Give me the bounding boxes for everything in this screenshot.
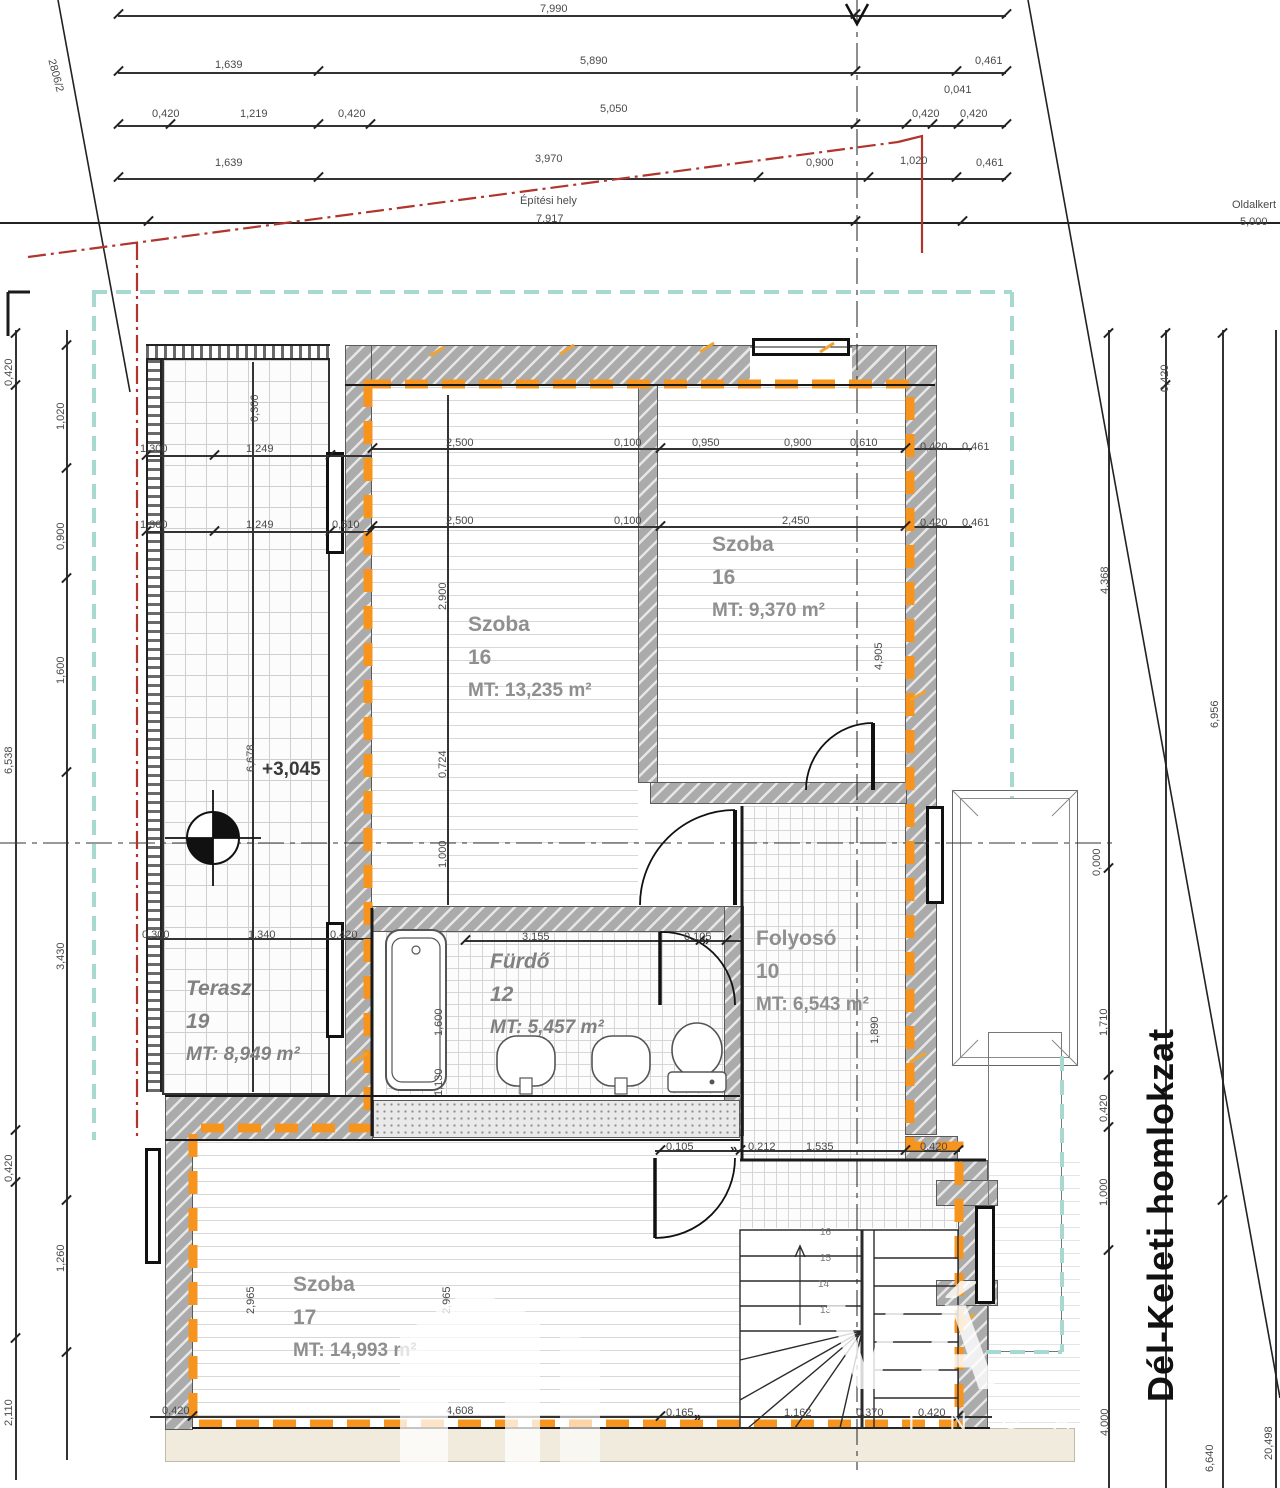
wall-left xyxy=(345,345,372,1135)
room-number: 16 xyxy=(712,561,825,594)
wall-right xyxy=(905,345,937,1135)
window-lower-right xyxy=(975,1206,995,1304)
dimension-label: 7,990 xyxy=(540,4,568,15)
room-name: Szoba xyxy=(468,608,592,641)
dimension-tick xyxy=(850,216,861,227)
dim-line xyxy=(655,1150,960,1152)
watermark-letters: I xyxy=(1172,1408,1193,1436)
dimension-tick xyxy=(753,172,764,183)
window-terrace-1 xyxy=(326,452,344,554)
dimension-label: 0,420 xyxy=(152,109,180,120)
room-number: 19 xyxy=(186,1005,300,1038)
terrace-railing-top xyxy=(146,344,330,360)
dim-line xyxy=(146,531,372,533)
dimension-tick xyxy=(313,66,324,77)
dimension-tick xyxy=(1001,119,1012,130)
room-label-terasz: Terasz 19 MT: 8,949 m² xyxy=(186,972,300,1071)
dimension-label: 5,050 xyxy=(600,104,628,115)
dimension-label: 0,420 xyxy=(338,109,366,120)
dimension-label: 13 xyxy=(820,1306,831,1316)
floor-plan-canvas: 7,9901,6395,8900,4610,4201,2190,4205,050… xyxy=(0,0,1280,1488)
wall-between-bedrooms xyxy=(638,385,658,783)
room-label-szoba-16-left: Szoba 16 MT: 13,235 m² xyxy=(468,608,592,707)
room-number: 12 xyxy=(490,978,604,1011)
bay-window-inner xyxy=(960,798,1070,1058)
dim-line-v xyxy=(1275,330,1277,1488)
wall-bathroom-top xyxy=(372,906,742,932)
room-number: 10 xyxy=(756,955,869,988)
room-label-folyoso: Folyosó 10 MT: 6,543 m² xyxy=(756,922,869,1021)
dimension-label: 5,890 xyxy=(580,56,608,67)
terrace-railing-left xyxy=(146,360,162,1092)
dimension-tick xyxy=(313,172,324,183)
dimension-label: 0,461 xyxy=(976,158,1004,169)
room-name: Szoba xyxy=(293,1268,417,1301)
dimension-label: 0,900 xyxy=(806,158,834,169)
dimension-label: 0,420 xyxy=(912,109,940,120)
dimension-tick xyxy=(1001,9,1012,20)
dimension-tick xyxy=(850,119,861,130)
lower-bay-outline xyxy=(988,1032,1062,1352)
dimension-tick xyxy=(165,119,176,130)
window-bottom-left xyxy=(145,1148,161,1264)
facade-title: Dél-Keleti homlokzat xyxy=(1140,932,1182,1402)
dim-line xyxy=(146,938,372,940)
stairs xyxy=(740,1230,958,1428)
dimension-tick xyxy=(957,216,968,227)
dim-line-v xyxy=(15,330,17,1480)
dimension-label: Építési hely xyxy=(520,196,577,207)
dimension-tick xyxy=(850,66,861,77)
dimension-label: 16 xyxy=(820,1228,831,1238)
room-name: Terasz xyxy=(186,972,300,1005)
dimension-label: 0,420 xyxy=(4,1154,15,1182)
dim-line-v xyxy=(66,330,68,1460)
dimension-tick xyxy=(850,9,861,20)
dimension-label: 1,020 xyxy=(900,156,928,167)
dimension-tick xyxy=(1001,66,1012,77)
dimension-label: 15 xyxy=(820,1254,831,1264)
site-boundary-line xyxy=(0,222,1280,224)
dimension-label: Oldalkert xyxy=(1232,200,1276,211)
wall-stairs-top-stub xyxy=(905,1136,958,1160)
dimension-tick xyxy=(863,172,874,183)
dim-line xyxy=(150,1416,992,1418)
bedroom-bottom-floor xyxy=(193,1142,740,1426)
dimension-tick xyxy=(1001,172,1012,183)
room-name: Fürdő xyxy=(490,945,604,978)
dimension-label: 1,639 xyxy=(215,60,243,71)
dimension-label: 1,639 xyxy=(215,158,243,169)
room-number: 17 xyxy=(293,1301,417,1334)
stair-landing-floor xyxy=(740,1160,958,1228)
dim-line xyxy=(118,72,1006,74)
dim-line xyxy=(372,448,972,450)
wall-bedroom-hallway xyxy=(650,782,907,804)
room-name: Folyosó xyxy=(756,922,869,955)
watermark-letters: O xyxy=(1238,1408,1271,1436)
dimension-label: 0,041 xyxy=(944,85,972,96)
room-name: Szoba xyxy=(712,528,825,561)
dimension-tick xyxy=(951,66,962,77)
dim-line xyxy=(118,15,1006,17)
window-top xyxy=(752,338,850,356)
dimension-label: 20,498 xyxy=(1264,1426,1275,1460)
dimension-tick xyxy=(901,119,912,130)
room-label-szoba-17: Szoba 17 MT: 14,993 m² xyxy=(293,1268,417,1367)
dim-line-v xyxy=(1108,330,1110,1488)
wall-bottom-left xyxy=(165,1096,373,1140)
dimension-label: 0,420 xyxy=(4,358,15,386)
room-area: MT: 9,370 m² xyxy=(712,594,825,627)
dimension-tick xyxy=(365,119,376,130)
dimension-label: 14 xyxy=(818,1280,829,1290)
dimension-tick xyxy=(313,119,324,130)
dimension-tick xyxy=(143,216,154,227)
room-area: MT: 6,543 m² xyxy=(756,988,869,1021)
dim-line xyxy=(372,526,972,528)
dim-line-v xyxy=(1222,330,1224,1488)
room-label-szoba-16-right: Szoba 16 MT: 9,370 m² xyxy=(712,528,825,627)
dimension-tick xyxy=(113,66,124,77)
watermark-letters: L xyxy=(1092,1408,1119,1436)
section-arrow-icon xyxy=(846,4,868,24)
dim-line xyxy=(118,178,1006,180)
dim-line xyxy=(118,125,1006,127)
dimension-label: 6,538 xyxy=(4,746,15,774)
room-area: MT: 5,457 m² xyxy=(490,1011,604,1044)
dimension-tick xyxy=(113,172,124,183)
dimension-label: 0,461 xyxy=(975,56,1003,67)
window-right xyxy=(926,806,944,904)
dim-line-v xyxy=(447,395,449,905)
dimension-tick xyxy=(113,9,124,20)
dimension-tick xyxy=(927,119,938,130)
dimension-label: 2806/2 xyxy=(45,58,64,93)
lower-level-strip xyxy=(165,1428,1075,1462)
dimension-tick xyxy=(951,172,962,183)
room-area: MT: 8,949 m² xyxy=(186,1038,300,1071)
dim-line xyxy=(465,940,742,942)
dimension-label: 3,970 xyxy=(535,154,563,165)
dimension-label: 0,420 xyxy=(960,109,988,120)
dimension-label: 6,640 xyxy=(1205,1444,1216,1472)
wall-bedroom-bottom-left xyxy=(165,1140,193,1430)
wall-bottom-stipple xyxy=(373,1100,740,1138)
dim-line xyxy=(146,455,372,457)
dimension-label: 0,000 xyxy=(1092,848,1103,876)
room-number: 16 xyxy=(468,641,592,674)
room-area: MT: 13,235 m² xyxy=(468,674,592,707)
dimension-tick xyxy=(953,119,964,130)
dimension-label: 6,956 xyxy=(1210,700,1221,728)
room-label-furdo: Fürdő 12 MT: 5,457 m² xyxy=(490,945,604,1044)
room-area: MT: 14,993 m² xyxy=(293,1334,417,1367)
dimension-label: 2,110 xyxy=(4,1399,15,1426)
dimension-tick xyxy=(113,119,124,130)
dimension-label: 1,219 xyxy=(240,109,268,120)
